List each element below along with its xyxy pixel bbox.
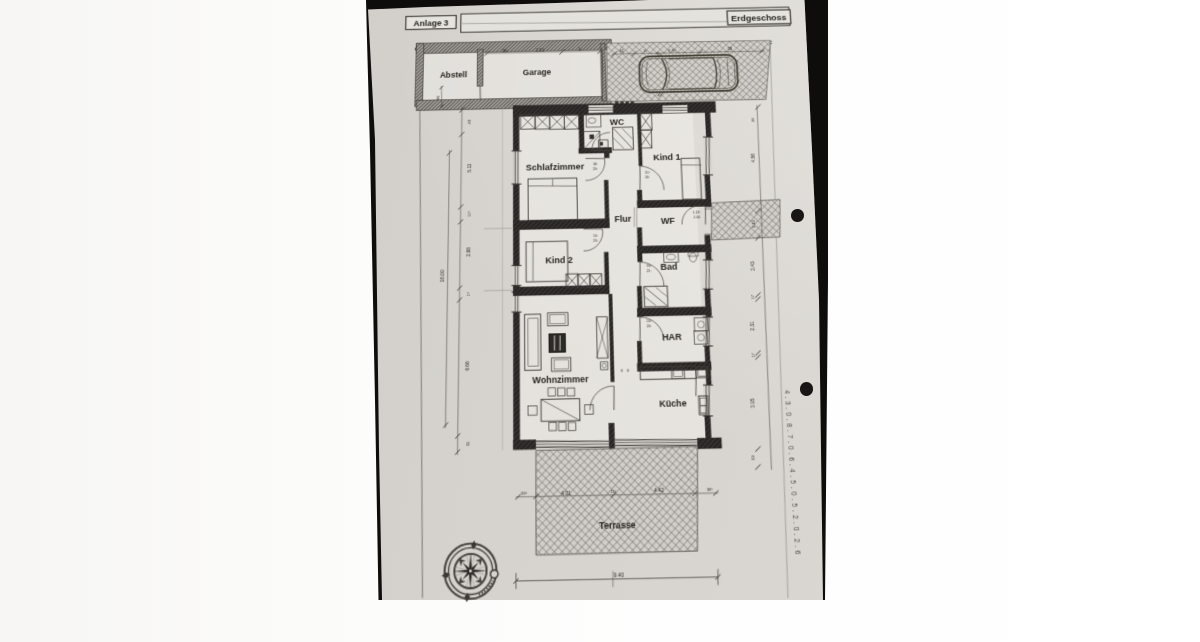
svg-text:4.3.0.8.7.0.6.4.5.0.5.2.0.2.6: 4.3.0.8.7.0.6.4.5.0.5.2.0.2.6 (782, 390, 801, 557)
svg-text:1⁵: 1⁵ (467, 292, 471, 296)
svg-text:4.42: 4.42 (654, 488, 664, 494)
svg-text:15: 15 (643, 48, 647, 53)
svg-text:17: 17 (751, 295, 755, 299)
svg-text:Bad: Bad (660, 261, 677, 272)
svg-text:HAR: HAR (662, 332, 682, 343)
svg-text:Schlafzimmer: Schlafzimmer (526, 161, 585, 172)
svg-text:1.13⁵: 1.13⁵ (693, 211, 702, 215)
svg-text:39⁵: 39⁵ (521, 492, 528, 497)
svg-text:Flur: Flur (614, 213, 632, 223)
svg-text:Abstell: Abstell (440, 70, 467, 80)
svg-text:WC: WC (610, 117, 625, 127)
svg-text:Kind 2: Kind 2 (545, 255, 573, 266)
svg-text:4.30: 4.30 (668, 48, 677, 53)
svg-text:18: 18 (14, 178, 15, 179)
svg-text:26: 26 (750, 117, 755, 122)
svg-text:6.66: 6.66 (465, 361, 470, 371)
svg-text:5.11: 5.11 (467, 163, 473, 172)
svg-text:2.88: 2.88 (466, 247, 471, 257)
svg-text:15: 15 (578, 47, 582, 52)
svg-text:35: 35 (466, 442, 470, 447)
svg-text:39: 39 (751, 456, 756, 461)
svg-text:Kind 1: Kind 1 (653, 152, 681, 162)
svg-text:2.81: 2.81 (536, 48, 545, 53)
svg-text:Wohnzimmer: Wohnzimmer (532, 373, 589, 385)
svg-text:9.40: 9.40 (614, 572, 625, 578)
svg-text:11⁵: 11⁵ (610, 490, 617, 495)
svg-text:2.31: 2.31 (750, 321, 756, 331)
svg-text:4.01: 4.01 (561, 491, 571, 497)
svg-text:305: 305 (502, 49, 509, 54)
svg-text:39⁵: 39⁵ (707, 488, 714, 493)
svg-text:99: 99 (727, 47, 733, 52)
svg-text:Anlage 3: Anlage 3 (414, 18, 449, 28)
svg-text:Küche: Küche (659, 397, 687, 408)
svg-text:8: 8 (621, 369, 623, 373)
svg-text:2.43: 2.43 (750, 261, 756, 271)
svg-text:Garage: Garage (523, 67, 552, 77)
svg-text:20¹: 20¹ (646, 324, 651, 328)
svg-text:Erdgeschoss: Erdgeschoss (731, 13, 787, 23)
svg-text:8: 8 (627, 369, 629, 373)
svg-text:4.56: 4.56 (750, 153, 757, 162)
svg-text:41: 41 (620, 49, 625, 54)
svg-text:Terrasse: Terrasse (599, 521, 637, 532)
svg-text:40: 40 (467, 119, 472, 124)
svg-text:11⁵: 11⁵ (466, 211, 471, 217)
svg-text:16.00: 16.00 (439, 269, 445, 282)
svg-text:3.95: 3.95 (750, 398, 756, 408)
svg-text:2.00: 2.00 (694, 215, 701, 219)
svg-text:17: 17 (751, 353, 755, 357)
svg-text:WF: WF (661, 216, 676, 226)
svg-text:1.14: 1.14 (750, 219, 756, 228)
